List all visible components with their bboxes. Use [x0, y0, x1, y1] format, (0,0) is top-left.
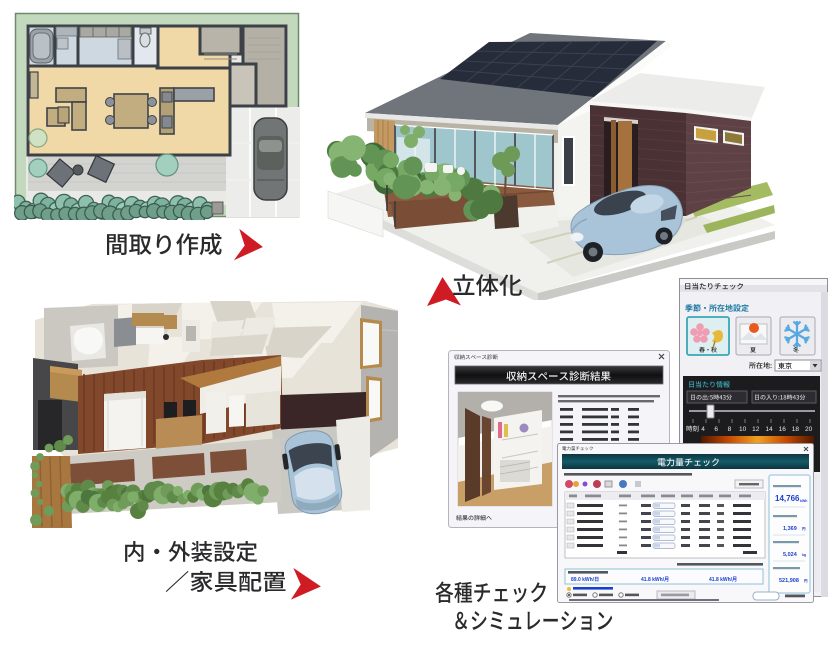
svg-text:16: 16	[779, 426, 787, 433]
svg-text:41.8 kWh/月: 41.8 kWh/月	[709, 576, 737, 583]
svg-text:kWh: kWh	[800, 499, 807, 503]
svg-text:kg: kg	[802, 553, 806, 557]
svg-text:8: 8	[728, 426, 732, 433]
svg-text:円: 円	[804, 578, 808, 583]
svg-text:521,908: 521,908	[779, 578, 799, 584]
svg-text:18: 18	[792, 426, 800, 433]
svg-text:14,766: 14,766	[775, 494, 800, 503]
svg-text:円: 円	[802, 526, 806, 531]
svg-text:12: 12	[752, 426, 760, 433]
svg-text:10: 10	[739, 426, 747, 433]
svg-text:20: 20	[805, 426, 813, 433]
svg-text:1,369: 1,369	[783, 526, 797, 532]
svg-text:5,024: 5,024	[783, 552, 798, 558]
svg-text:6: 6	[714, 426, 718, 433]
svg-text:14: 14	[765, 426, 773, 433]
svg-text:4: 4	[701, 426, 705, 433]
